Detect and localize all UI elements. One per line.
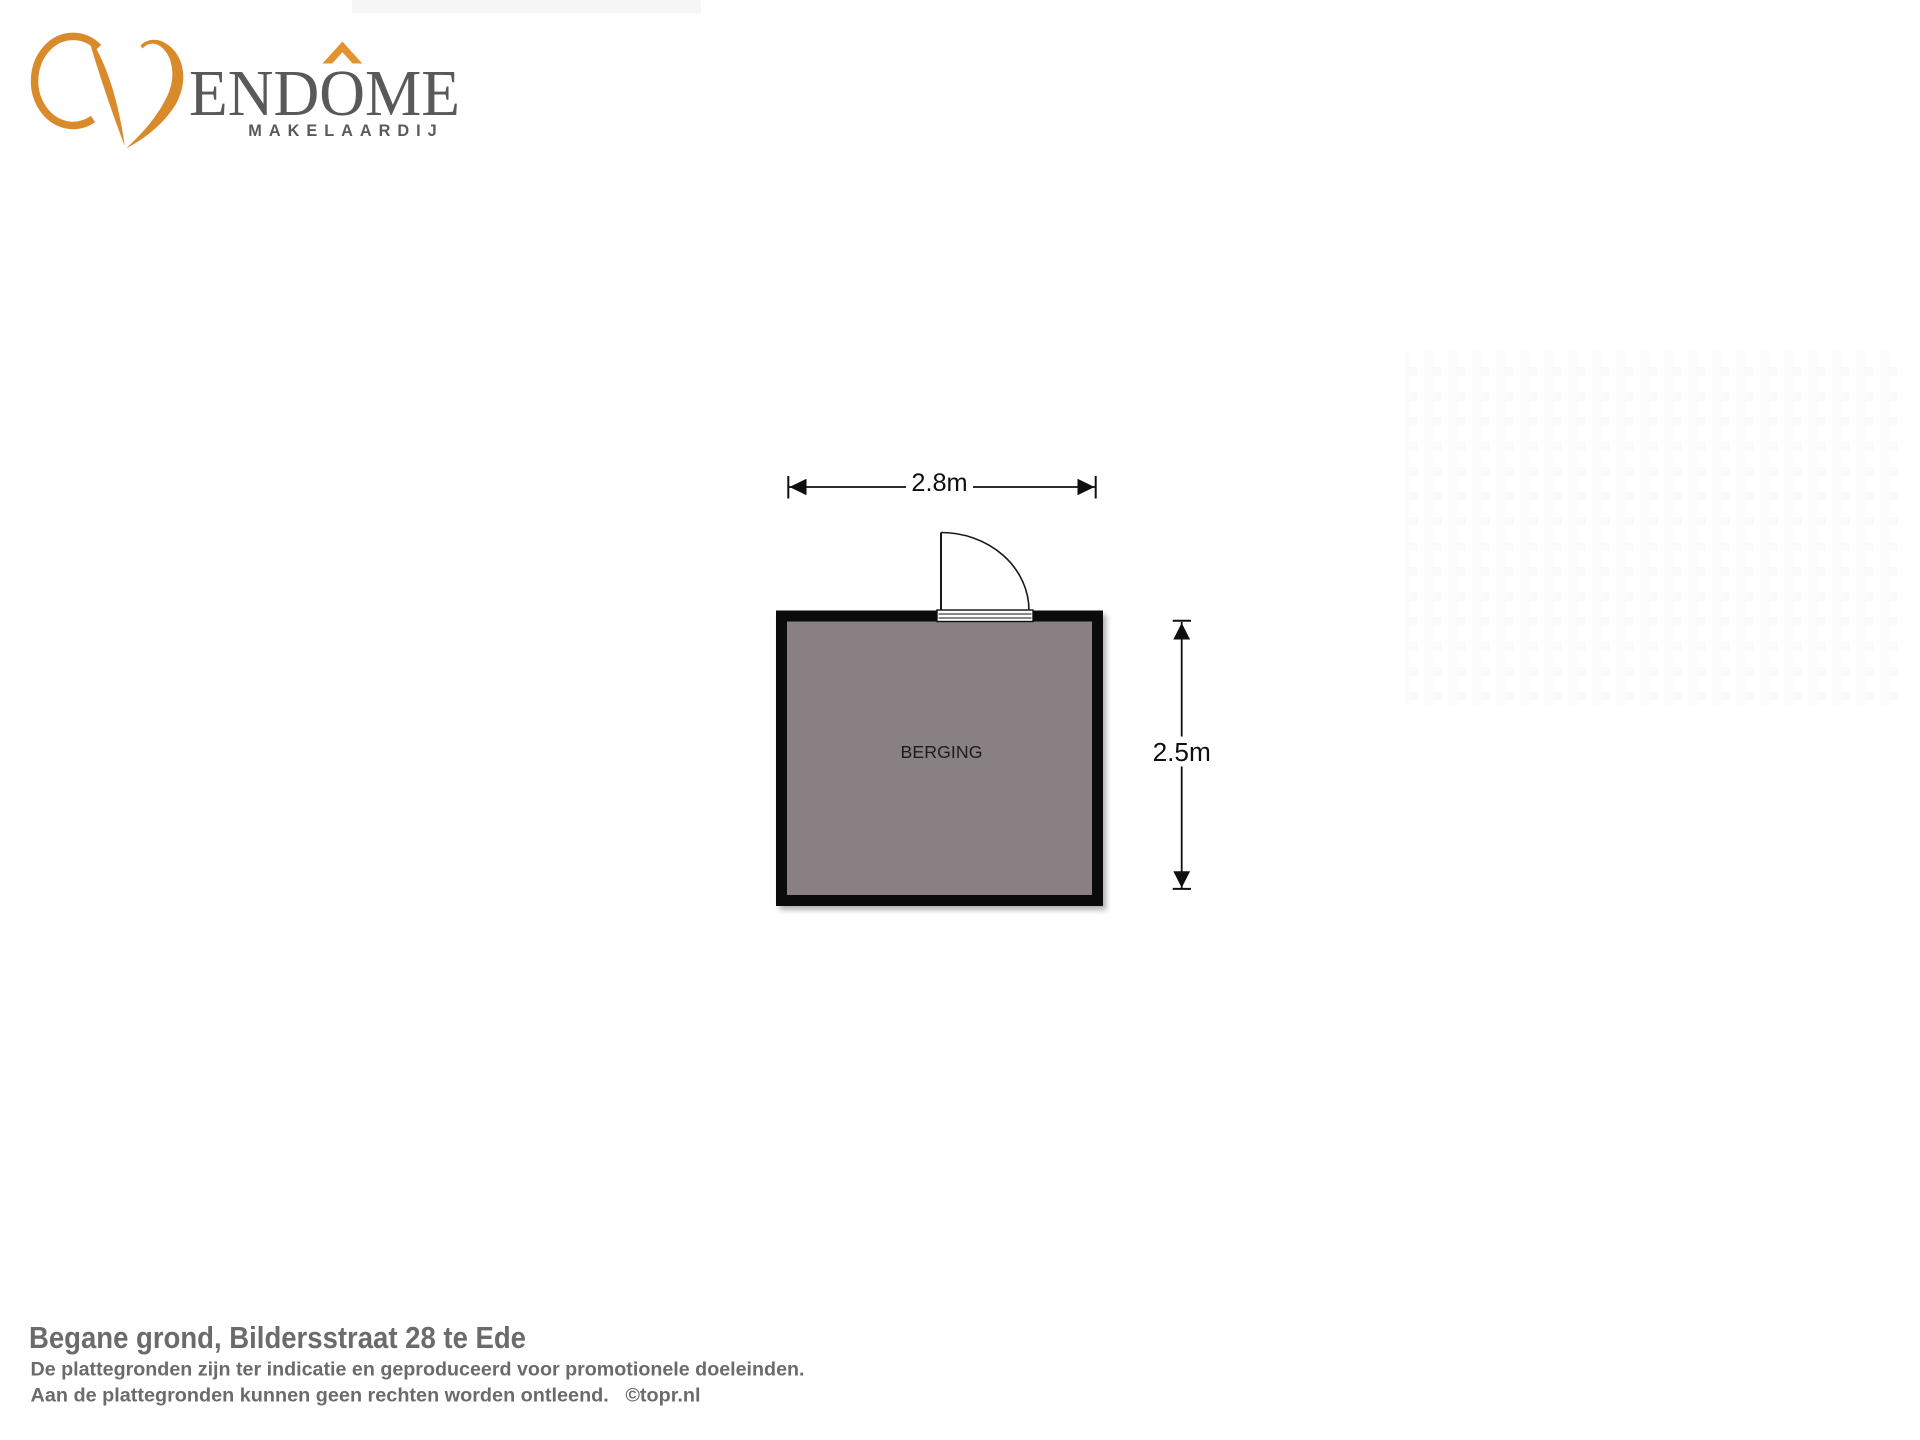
svg-text:2.5m: 2.5m [1153,737,1211,767]
svg-text:Begane grond, Bildersstraat 28: Begane grond, Bildersstraat 28 te Ede [29,1320,526,1355]
svg-text:De plattegronden zijn ter indi: De plattegronden zijn ter indicatie en g… [31,1360,805,1381]
svg-text:2.8m: 2.8m [911,469,967,497]
svg-text:BERGING: BERGING [901,742,983,762]
svg-text:MAKELAARDIJ: MAKELAARDIJ [248,122,436,140]
svg-text:Aan de plattegronden kunnen ge: Aan de plattegronden kunnen geen rechten… [31,1386,701,1407]
svg-text:ENDOME: ENDOME [189,57,460,130]
